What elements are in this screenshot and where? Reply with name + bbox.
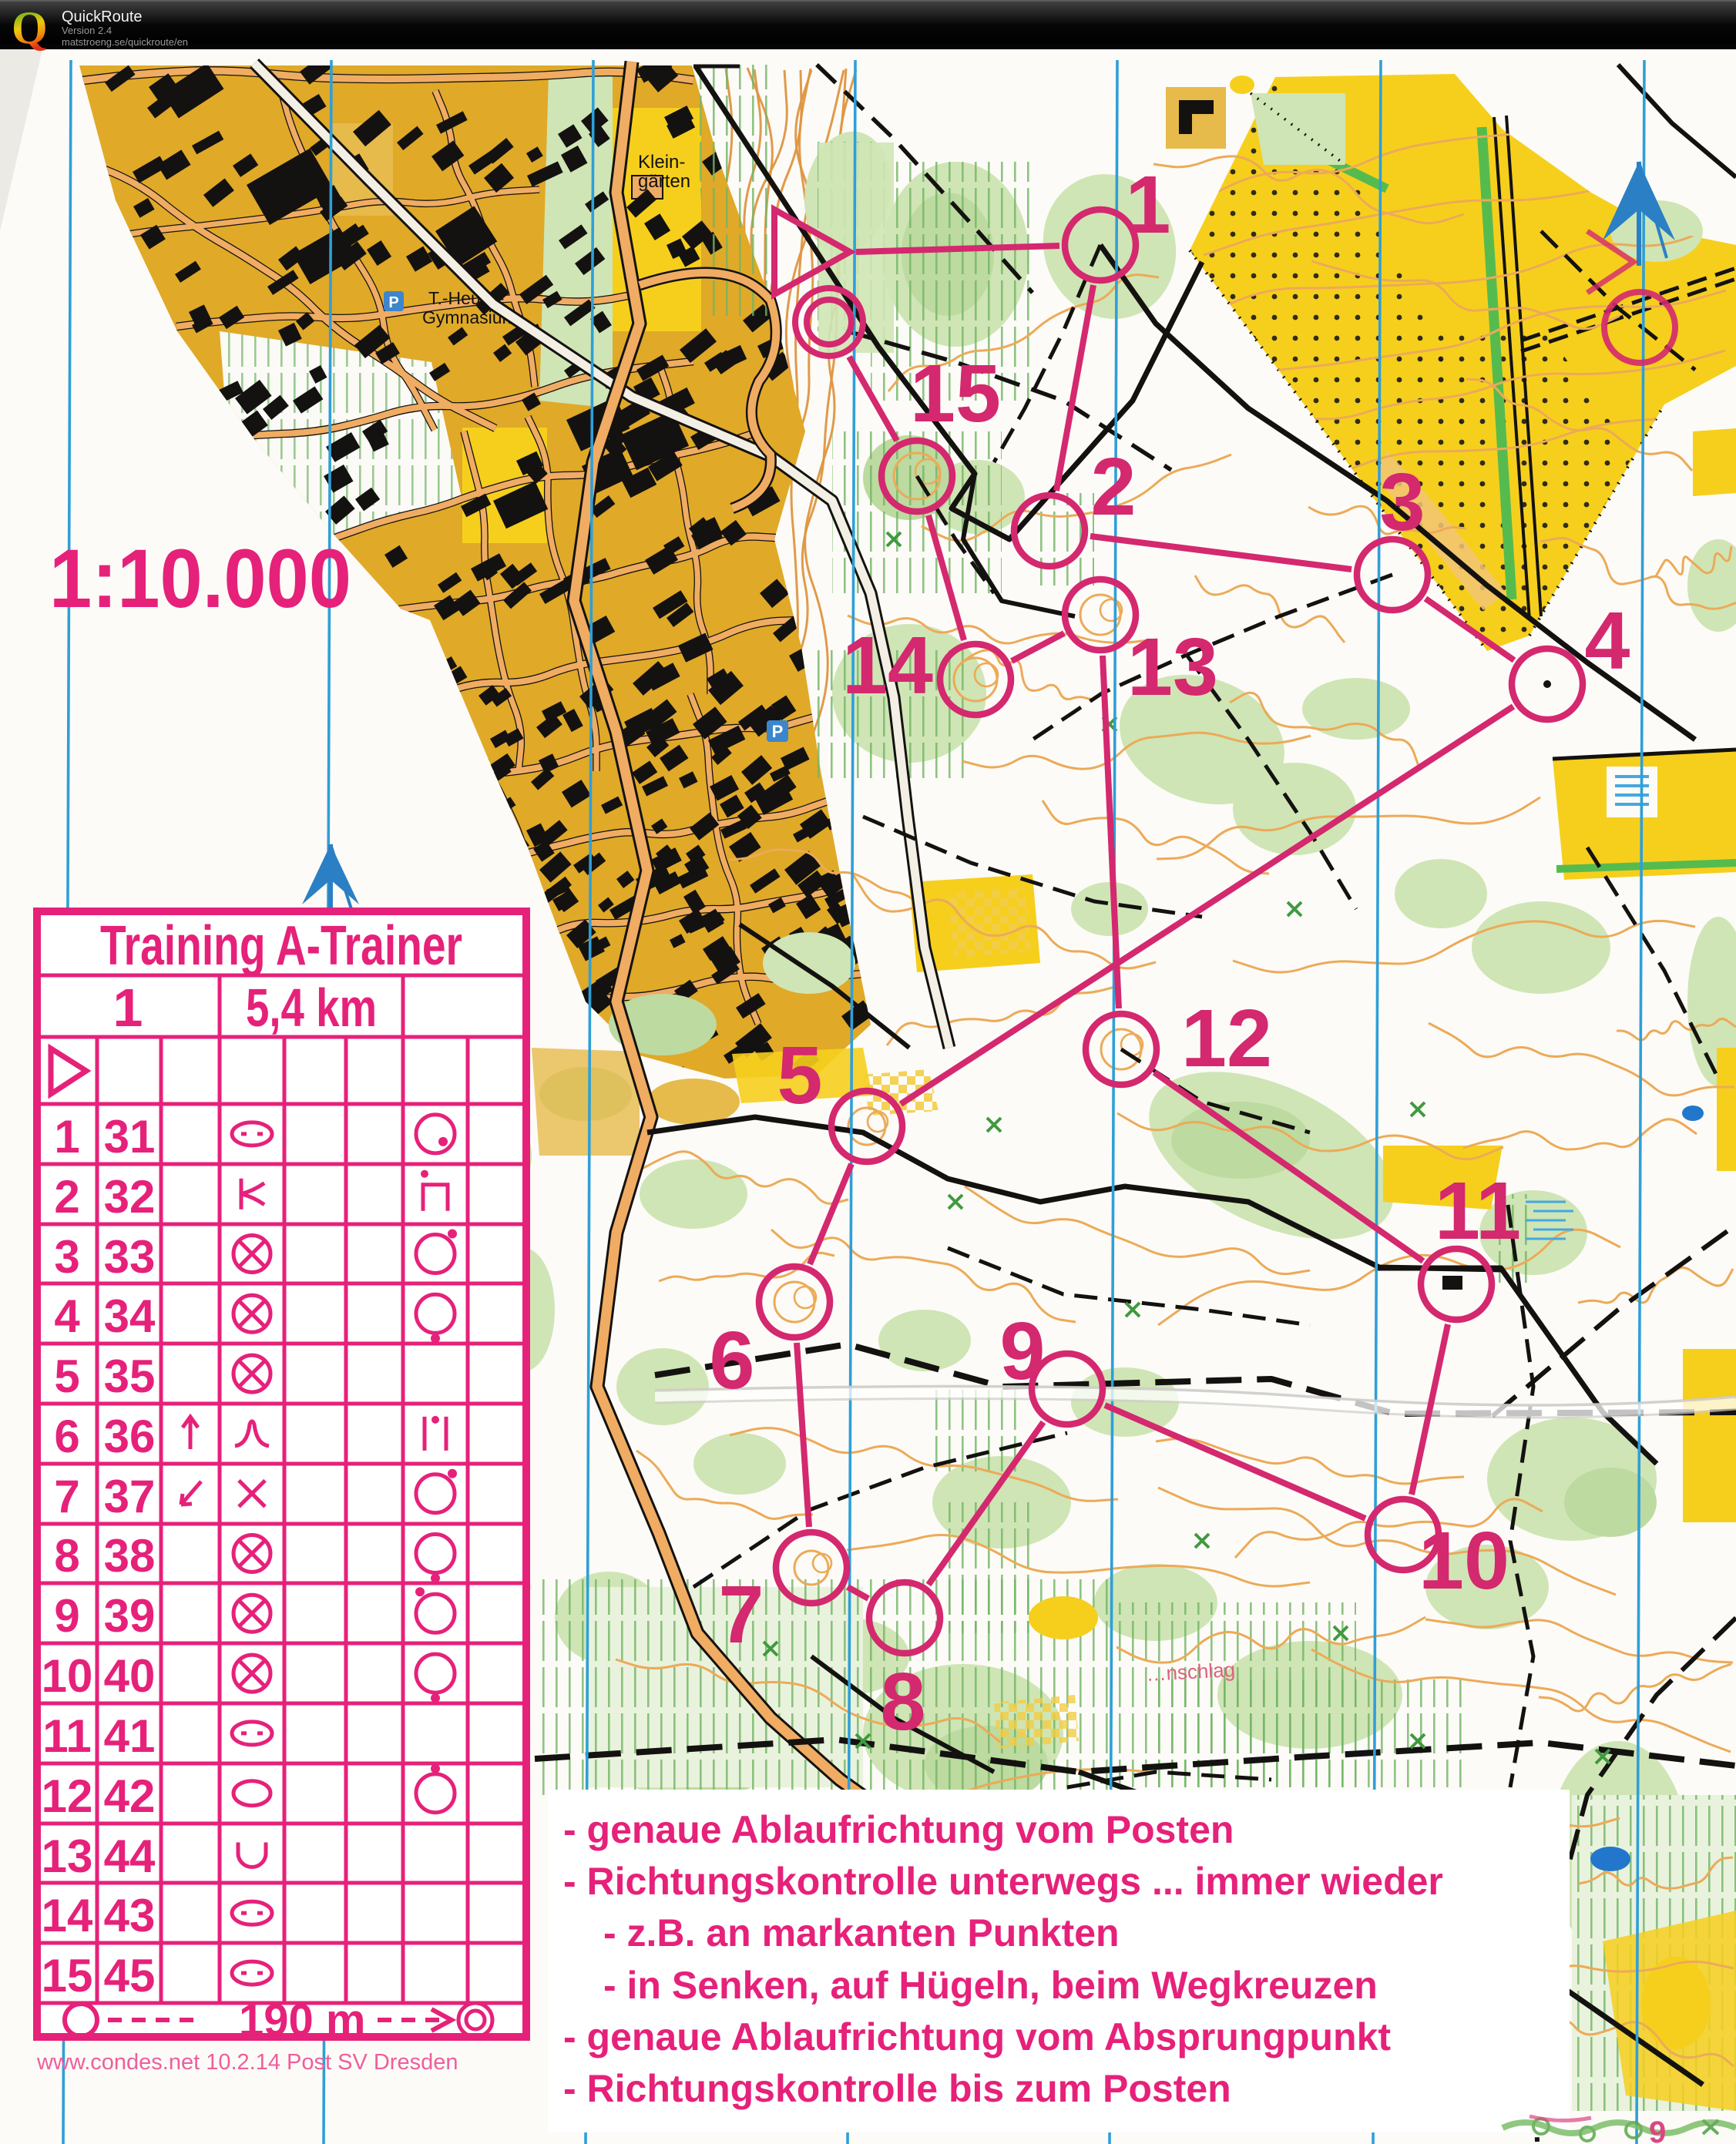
svg-text:Training A-Trainer: Training A-Trainer (100, 915, 462, 977)
svg-text:3: 3 (1380, 457, 1425, 548)
svg-text:2: 2 (1091, 441, 1137, 532)
svg-text:1: 1 (1126, 159, 1171, 250)
svg-text:15: 15 (910, 348, 1001, 439)
svg-text:QuickRoute: QuickRoute (62, 8, 143, 25)
svg-text:8: 8 (881, 1656, 926, 1747)
svg-text:7: 7 (719, 1569, 764, 1660)
svg-text:6: 6 (710, 1315, 755, 1406)
svg-text:8: 8 (54, 1530, 79, 1582)
svg-text:gärten: gärten (638, 171, 690, 192)
svg-text:12: 12 (1181, 993, 1272, 1084)
svg-text:- Richtungskontrolle bis zum P: - Richtungskontrolle bis zum Posten (563, 2067, 1231, 2110)
svg-text:9: 9 (1000, 1306, 1046, 1397)
svg-text:42: 42 (104, 1770, 156, 1822)
svg-text:32: 32 (104, 1171, 156, 1223)
svg-text:44: 44 (104, 1830, 156, 1882)
svg-text:13: 13 (1127, 622, 1218, 713)
svg-text:Version 2.4: Version 2.4 (62, 25, 112, 36)
svg-text:12: 12 (42, 1770, 93, 1822)
svg-text:11: 11 (1435, 1166, 1521, 1257)
svg-text:- genaue Ablaufrichtung vom Ab: - genaue Ablaufrichtung vom Absprungpunk… (563, 2015, 1391, 2058)
svg-text:1: 1 (113, 978, 143, 1038)
svg-text:45: 45 (104, 1950, 156, 2001)
svg-text:- z.B. an markanten Punkten: - z.B. an markanten Punkten (603, 1911, 1120, 1954)
svg-text:39: 39 (104, 1590, 156, 1642)
svg-text:1:10.000: 1:10.000 (49, 532, 351, 625)
svg-text:10: 10 (42, 1650, 93, 1702)
svg-text:10: 10 (1419, 1515, 1509, 1606)
svg-text:9: 9 (1649, 2115, 1666, 2144)
svg-text:…nschlag: …nschlag (1146, 1658, 1236, 1686)
svg-text:P: P (388, 294, 398, 311)
svg-text:34: 34 (104, 1290, 156, 1342)
svg-text:3: 3 (54, 1231, 79, 1283)
svg-text:11: 11 (42, 1710, 91, 1762)
svg-text:2: 2 (54, 1171, 79, 1223)
svg-text:14: 14 (842, 620, 933, 711)
svg-text:- Richtungskontrolle unterwegs: - Richtungskontrolle unterwegs ... immer… (563, 1860, 1443, 1903)
svg-text:31: 31 (104, 1111, 156, 1163)
svg-text:33: 33 (104, 1231, 156, 1283)
svg-text:43: 43 (104, 1890, 156, 1941)
svg-text:38: 38 (104, 1530, 156, 1582)
svg-text:9: 9 (54, 1590, 79, 1642)
svg-text:4: 4 (1585, 596, 1630, 686)
svg-text:www.condes.net 10.2.14 Post SV: www.condes.net 10.2.14 Post SV Dresden (36, 2050, 458, 2075)
svg-text:36: 36 (104, 1411, 156, 1462)
svg-text:Klein-: Klein- (638, 152, 685, 173)
svg-text:35: 35 (104, 1350, 156, 1402)
svg-text:37: 37 (104, 1471, 156, 1522)
svg-text:matstroeng.se/quickroute/en: matstroeng.se/quickroute/en (62, 36, 188, 48)
svg-text:6: 6 (54, 1411, 79, 1462)
svg-text:190 m: 190 m (239, 1995, 365, 2045)
svg-text:1: 1 (54, 1111, 79, 1163)
svg-text:13: 13 (42, 1830, 93, 1882)
svg-text:5,4 km: 5,4 km (246, 978, 377, 1038)
svg-text:41: 41 (104, 1710, 156, 1762)
svg-text:- genaue Ablaufrichtung vom Po: - genaue Ablaufrichtung vom Posten (563, 1808, 1234, 1851)
svg-text:15: 15 (42, 1950, 93, 2001)
svg-text:P: P (772, 722, 784, 741)
svg-text:14: 14 (42, 1890, 93, 1941)
svg-text:4: 4 (54, 1290, 80, 1342)
svg-text:Q: Q (12, 2, 48, 53)
svg-text:40: 40 (104, 1650, 156, 1702)
svg-text:7: 7 (54, 1471, 79, 1522)
svg-text:5: 5 (54, 1350, 79, 1402)
svg-text:5: 5 (777, 1030, 823, 1121)
svg-text:- in Senken, auf Hügeln, beim: - in Senken, auf Hügeln, beim Wegkreuzen (603, 1964, 1378, 2007)
